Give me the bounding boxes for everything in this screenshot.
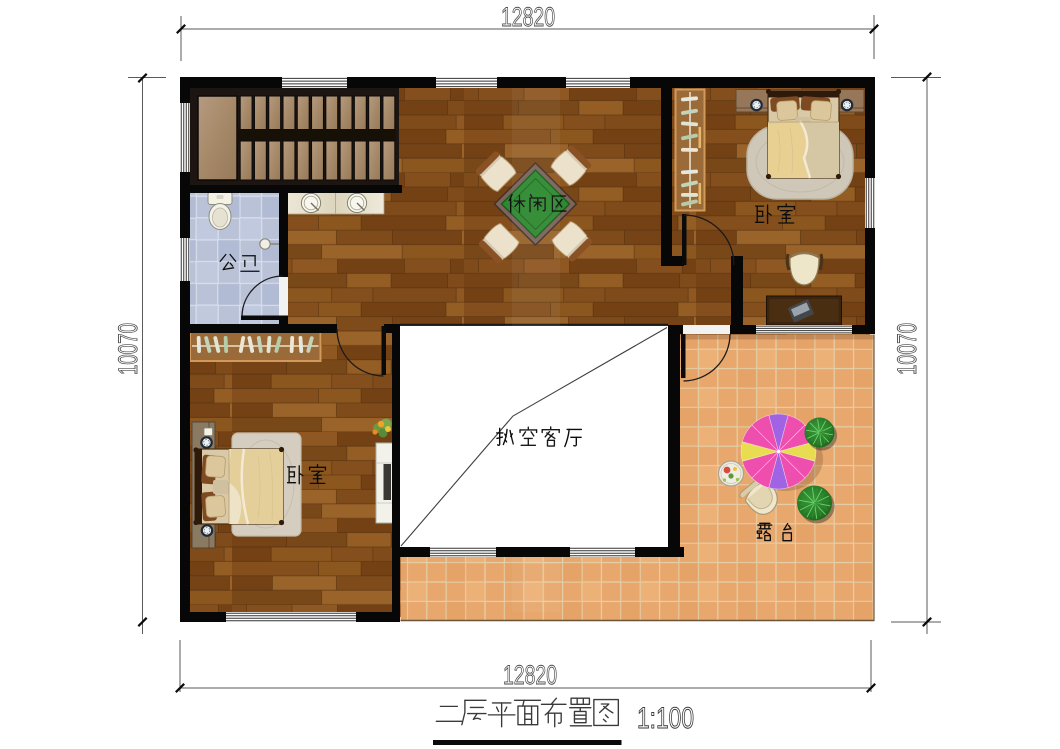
svg-text:1:100: 1:100 xyxy=(637,702,694,735)
svg-text:10070: 10070 xyxy=(892,323,922,375)
svg-text:12820: 12820 xyxy=(503,660,557,690)
svg-text:10070: 10070 xyxy=(113,323,143,375)
svg-text:12820: 12820 xyxy=(501,2,555,32)
